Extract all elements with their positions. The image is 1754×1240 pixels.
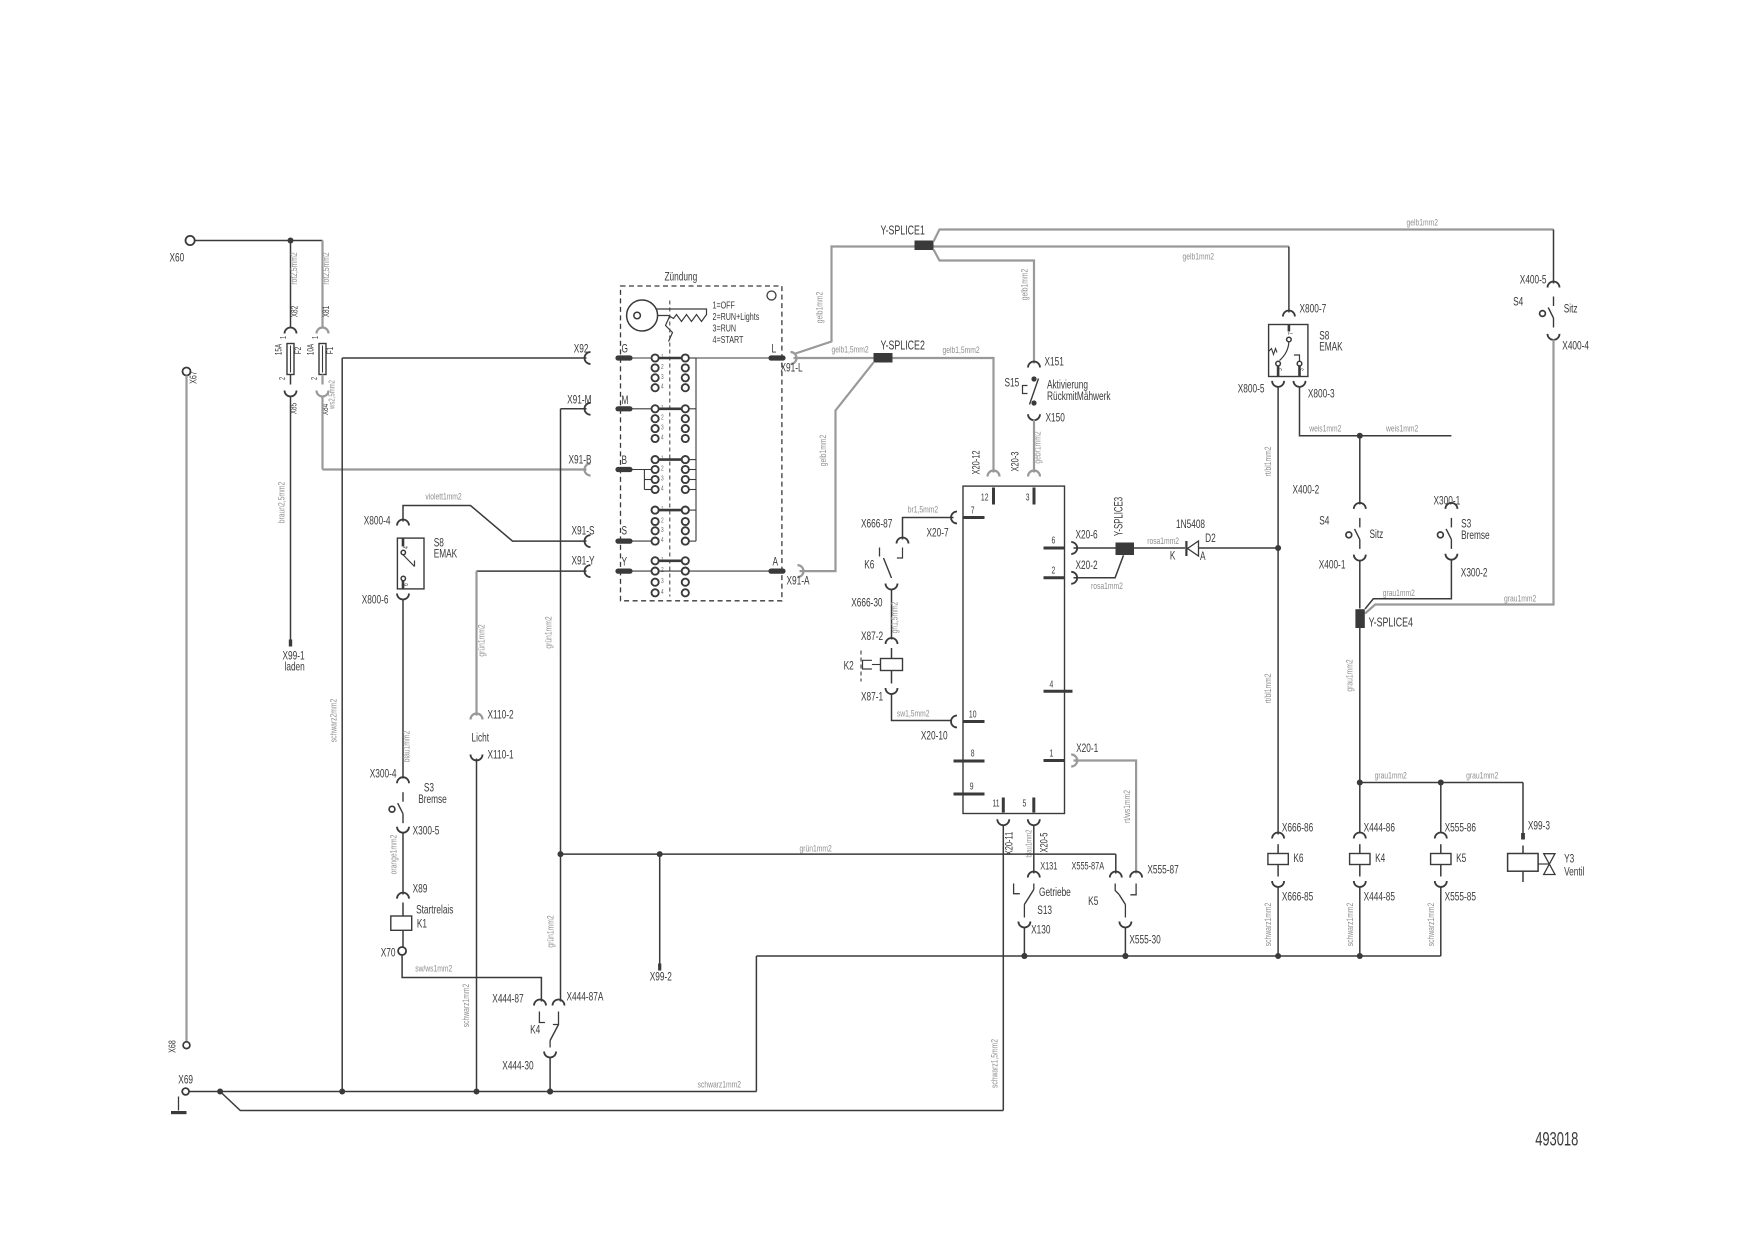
svg-text:gelb1mm2: gelb1mm2 [818,434,828,466]
svg-text:X87-2: X87-2 [861,631,883,644]
svg-text:1=OFF: 1=OFF [713,299,736,311]
svg-text:schwarz1,5mm2: schwarz1,5mm2 [990,1038,1000,1088]
svg-text:X555-30: X555-30 [1129,934,1160,947]
svg-text:X400-1: X400-1 [1319,559,1346,572]
svg-text:15A: 15A [273,343,284,355]
svg-text:X400-5: X400-5 [1520,274,1547,287]
svg-text:A: A [1200,551,1206,564]
svg-text:X91-B: X91-B [568,454,591,467]
svg-text:sw/ws1mm2: sw/ws1mm2 [415,964,453,974]
svg-text:Y-SPLICE3: Y-SPLICE3 [1113,496,1126,536]
svg-text:X444-87: X444-87 [492,993,523,1006]
svg-text:X666-85: X666-85 [1282,891,1313,904]
svg-text:3: 3 [1026,491,1030,503]
svg-text:X91-S: X91-S [571,525,594,538]
svg-text:S4: S4 [1319,515,1329,528]
svg-text:blau1mm2: blau1mm2 [1026,829,1034,857]
svg-text:gelb1mm2: gelb1mm2 [1020,268,1030,300]
svg-text:1N5408: 1N5408 [1176,519,1205,532]
svg-text:K5: K5 [1088,896,1098,909]
svg-text:X800-3: X800-3 [1308,388,1335,401]
svg-text:gelb1mm2: gelb1mm2 [1183,252,1215,262]
svg-text:X150: X150 [1046,412,1066,425]
svg-text:grau1mm2: grau1mm2 [1345,659,1355,692]
svg-text:K6: K6 [864,559,874,572]
svg-text:schwarz1mm2: schwarz1mm2 [1426,902,1436,946]
svg-text:rosa1mm2: rosa1mm2 [1091,581,1123,591]
svg-text:rosa1mm2: rosa1mm2 [1147,536,1179,546]
svg-text:grau1mm2: grau1mm2 [1504,594,1537,604]
svg-text:weis1mm2: weis1mm2 [1385,424,1419,434]
svg-text:blau1mm2: blau1mm2 [402,730,412,762]
svg-text:X20-2: X20-2 [1076,560,1098,573]
svg-text:grau1mm2: grau1mm2 [1466,771,1499,781]
svg-text:3=RUN: 3=RUN [713,322,737,334]
svg-text:schwarz1mm2: schwarz1mm2 [698,1080,742,1090]
svg-text:gelb1mm2: gelb1mm2 [1407,218,1439,228]
svg-text:Startrelais: Startrelais [416,904,453,917]
svg-text:X130: X130 [1031,924,1051,937]
svg-text:X91-Y: X91-Y [571,555,594,568]
svg-text:rot2,5mm2: rot2,5mm2 [289,252,299,285]
svg-text:X20-12: X20-12 [969,450,982,474]
svg-text:laden: laden [285,661,305,674]
svg-text:weis1mm2: weis1mm2 [1308,424,1342,434]
svg-text:X666-87: X666-87 [861,518,892,531]
svg-text:X444-85: X444-85 [1364,891,1395,904]
svg-text:K: K [1170,550,1176,563]
svg-text:Licht: Licht [472,732,490,745]
svg-text:K4: K4 [1375,853,1385,866]
svg-text:F2: F2 [293,346,304,354]
svg-text:Y: Y [622,556,628,569]
svg-text:gelb1,5mm2: gelb1,5mm2 [832,345,870,355]
svg-text:grün1mm2: grün1mm2 [544,616,554,649]
svg-text:violett1mm2: violett1mm2 [425,492,462,502]
svg-text:X99-3: X99-3 [1528,820,1550,833]
svg-text:X110-2: X110-2 [488,709,514,722]
svg-text:X300-2: X300-2 [1461,567,1488,580]
svg-text:9: 9 [970,780,974,792]
svg-text:X91-M: X91-M [567,394,591,407]
svg-text:Zündung: Zündung [665,271,698,284]
svg-text:X555-87: X555-87 [1147,864,1178,877]
svg-text:D2: D2 [1205,533,1216,546]
svg-text:X555-86: X555-86 [1445,822,1476,835]
svg-text:br1,5mm2: br1,5mm2 [908,505,939,515]
svg-text:B: B [622,455,628,468]
svg-text:orange1mm2: orange1mm2 [389,834,399,874]
svg-text:X444-86: X444-86 [1364,822,1395,835]
svg-text:X444-30: X444-30 [502,1060,533,1073]
svg-text:A: A [773,556,779,569]
svg-text:K1: K1 [417,918,427,931]
svg-text:X20-1: X20-1 [1076,743,1098,756]
svg-text:12: 12 [981,491,989,503]
svg-text:rt/bl1mm2: rt/bl1mm2 [1263,673,1273,703]
svg-text:4: 4 [1050,678,1054,690]
svg-text:EMAK: EMAK [1319,341,1343,354]
svg-text:1: 1 [1050,747,1054,759]
svg-text:braun2,5mm2: braun2,5mm2 [277,481,287,523]
svg-text:L: L [772,343,777,356]
svg-text:grau1mm2: grau1mm2 [1383,588,1416,598]
svg-text:G: G [622,343,628,356]
svg-text:X92: X92 [574,343,589,356]
svg-text:grün1mm2: grün1mm2 [546,915,556,948]
svg-text:X666-30: X666-30 [851,597,882,610]
svg-text:8: 8 [971,747,975,759]
svg-text:X300-4: X300-4 [370,768,397,781]
svg-text:6: 6 [1052,534,1056,546]
svg-text:X81: X81 [321,305,332,317]
svg-text:rt/bl1mm2: rt/bl1mm2 [1263,446,1273,476]
svg-text:2: 2 [1052,564,1056,576]
svg-text:gebr1mm2: gebr1mm2 [1033,431,1043,464]
svg-text:rt/ws1mm2: rt/ws1mm2 [1122,790,1132,823]
svg-text:grün1mm2: grün1mm2 [477,624,487,657]
svg-text:X444-87A: X444-87A [567,991,604,1004]
svg-text:X67: X67 [187,371,199,384]
svg-text:Sitz: Sitz [1370,529,1384,542]
svg-text:Y-SPLICE2: Y-SPLICE2 [881,339,925,353]
svg-text:X800-4: X800-4 [364,515,391,528]
svg-text:gelb1mm2: gelb1mm2 [815,291,825,323]
svg-text:X20-3: X20-3 [1008,452,1021,472]
svg-text:X91-A: X91-A [787,575,810,588]
svg-text:11: 11 [992,797,999,809]
svg-text:X89: X89 [413,883,428,896]
svg-text:10: 10 [969,708,977,720]
svg-text:4=START: 4=START [713,334,744,346]
svg-text:X20-10: X20-10 [921,730,948,743]
svg-text:X82: X82 [289,305,300,317]
svg-text:2=RUN+Lights: 2=RUN+Lights [713,311,760,323]
svg-text:sw1,5mm2: sw1,5mm2 [897,709,930,719]
svg-text:K5: K5 [1456,853,1466,866]
svg-text:X400-2: X400-2 [1292,484,1319,497]
svg-text:EMAK: EMAK [434,548,458,561]
svg-text:X555-87A: X555-87A [1072,860,1105,872]
svg-text:schwarz2mm2: schwarz2mm2 [329,698,339,742]
svg-text:rot2,5mm2: rot2,5mm2 [321,252,331,285]
svg-text:2: 2 [311,377,319,380]
svg-text:5: 5 [1023,797,1027,809]
svg-text:Y-SPLICE1: Y-SPLICE1 [881,224,925,238]
svg-text:Sitz: Sitz [1564,303,1578,316]
svg-text:schwarz1mm2: schwarz1mm2 [1345,902,1355,946]
svg-text:Y3: Y3 [1564,853,1574,866]
svg-text:S: S [622,525,628,538]
svg-text:X800-6: X800-6 [362,594,389,607]
svg-text:X87-1: X87-1 [861,691,883,704]
svg-text:X20-5: X20-5 [1037,833,1050,853]
svg-text:X60: X60 [170,252,185,265]
svg-text:S13: S13 [1037,905,1052,918]
svg-text:RückmitMähwerk: RückmitMähwerk [1047,391,1111,404]
svg-text:M: M [622,395,629,408]
svg-text:X666-86: X666-86 [1282,822,1313,835]
svg-text:K4: K4 [530,1024,540,1037]
svg-text:grau1mm2: grau1mm2 [1375,771,1408,781]
svg-text:X70: X70 [381,947,396,960]
svg-text:X69: X69 [178,1074,193,1087]
svg-text:Bremse: Bremse [418,794,447,807]
svg-text:1: 1 [280,336,288,339]
svg-text:X68: X68 [166,1040,178,1053]
svg-text:10A: 10A [305,343,316,355]
svg-text:X400-4: X400-4 [1562,340,1589,353]
svg-text:2: 2 [279,377,287,380]
svg-text:Bremse: Bremse [1461,530,1490,543]
svg-text:gelb1,5mm2: gelb1,5mm2 [943,345,981,355]
svg-text:Getriebe: Getriebe [1039,887,1071,900]
svg-text:493018: 493018 [1535,1129,1578,1150]
svg-text:X131: X131 [1040,860,1057,872]
svg-text:schwarz1mm2: schwarz1mm2 [1263,902,1273,946]
svg-text:S4: S4 [1513,296,1523,309]
svg-text:X800-7: X800-7 [1300,303,1327,316]
svg-text:X91-L: X91-L [781,362,803,375]
svg-text:7: 7 [971,504,975,516]
svg-text:X300-1: X300-1 [1434,495,1461,508]
svg-text:X300-5: X300-5 [413,825,440,838]
svg-text:1: 1 [312,336,320,339]
svg-text:K6: K6 [1293,853,1303,866]
svg-text:X20-7: X20-7 [927,527,949,540]
svg-text:X110-1: X110-1 [488,749,514,762]
svg-text:S15: S15 [1005,377,1020,390]
svg-text:X555-85: X555-85 [1445,891,1476,904]
svg-text:schwarz1mm2: schwarz1mm2 [461,983,471,1027]
svg-text:X151: X151 [1045,356,1065,369]
svg-text:X20-6: X20-6 [1076,529,1098,542]
svg-text:X99-2: X99-2 [650,971,672,984]
svg-text:Y-SPLICE4: Y-SPLICE4 [1369,616,1413,630]
svg-text:Ventil: Ventil [1564,866,1584,879]
svg-text:grün1mm2: grün1mm2 [800,844,833,854]
svg-text:X800-5: X800-5 [1238,383,1265,396]
svg-text:ws2,5mm2: ws2,5mm2 [329,380,337,410]
svg-text:gn1,5mm2: gn1,5mm2 [890,601,900,633]
svg-text:F1: F1 [325,346,336,354]
svg-text:K2: K2 [844,660,854,673]
